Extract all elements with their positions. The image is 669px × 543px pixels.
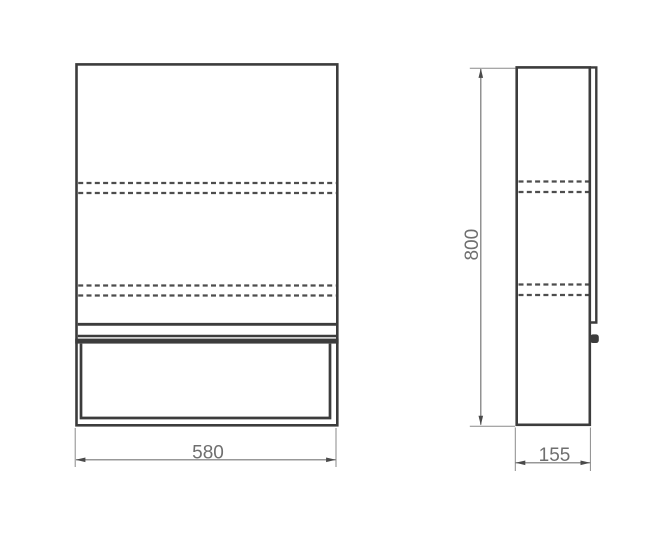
svg-text:580: 580 <box>192 443 224 464</box>
svg-text:155: 155 <box>539 445 571 466</box>
svg-text:800: 800 <box>462 229 483 261</box>
